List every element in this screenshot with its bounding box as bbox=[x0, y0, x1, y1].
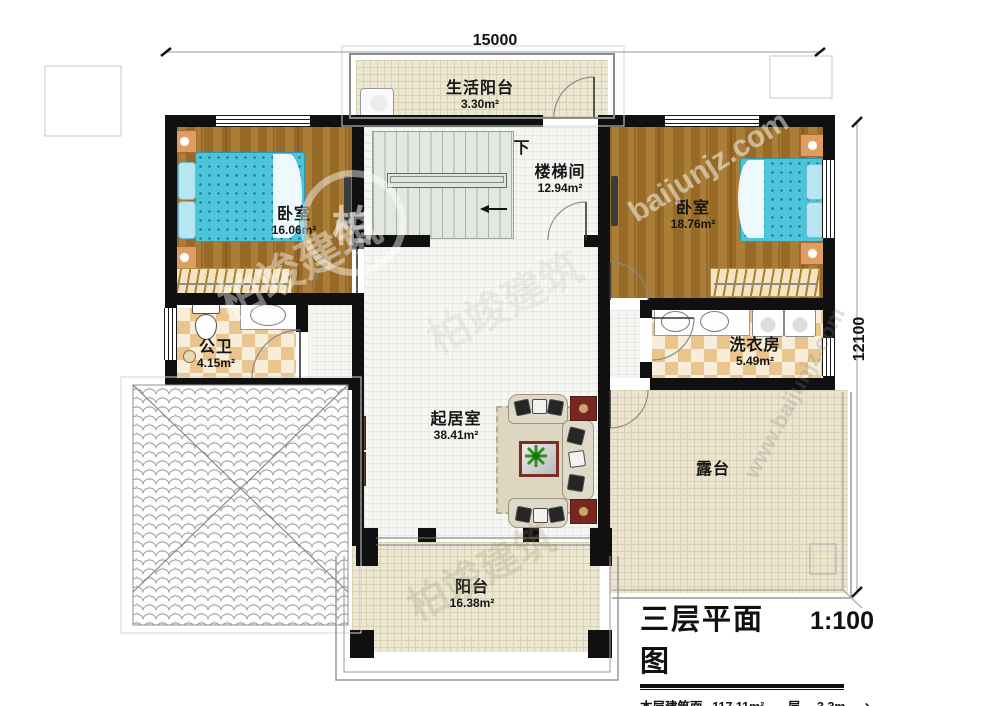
room-area: 16.06m² bbox=[239, 224, 349, 238]
wall bbox=[584, 235, 610, 247]
water-heater bbox=[360, 88, 394, 118]
laundry-sink bbox=[661, 311, 690, 332]
north-arrow-icon: ↘ bbox=[864, 699, 874, 706]
room-area: 12.94m² bbox=[505, 182, 615, 196]
sofa-top bbox=[508, 394, 568, 424]
stairs bbox=[372, 131, 514, 239]
washing-machine bbox=[752, 306, 784, 337]
room-area: 16.38m² bbox=[417, 597, 527, 611]
dimension-top: 15000 bbox=[463, 32, 527, 50]
room-label-bedroom-right: 卧室 18.76m² bbox=[638, 200, 748, 232]
column bbox=[590, 528, 612, 566]
wall bbox=[352, 115, 543, 127]
floor-area-label: 本层建筑面积: bbox=[640, 696, 708, 706]
nightstand bbox=[800, 134, 825, 157]
room-area: 5.49m² bbox=[700, 355, 810, 369]
plan-scale: 1:100 bbox=[810, 607, 874, 636]
plan-title: 三层平面图 bbox=[640, 596, 794, 680]
wall bbox=[648, 298, 835, 310]
eave-outline bbox=[45, 66, 121, 136]
window bbox=[216, 115, 310, 127]
room-name: 生活阳台 bbox=[415, 80, 545, 98]
room-name: 卧室 bbox=[638, 200, 748, 218]
eave-outline bbox=[770, 56, 832, 98]
room-area: 4.15m² bbox=[161, 357, 271, 371]
floor-height-value: 3.3m bbox=[817, 700, 846, 706]
wall bbox=[640, 362, 652, 378]
wall bbox=[296, 305, 308, 332]
sofa-right bbox=[562, 420, 594, 500]
room-name: 公卫 bbox=[161, 339, 271, 357]
room-name: 楼梯间 bbox=[505, 164, 615, 182]
sofa-bottom bbox=[508, 498, 568, 528]
stairs-down-label: 下 bbox=[508, 140, 536, 158]
hall-strip-left bbox=[308, 305, 352, 378]
pillow bbox=[178, 162, 196, 200]
wall bbox=[352, 293, 364, 546]
laundry-sink bbox=[700, 311, 729, 332]
room-label-laundry: 洗衣房 5.49m² bbox=[700, 337, 810, 369]
wall bbox=[165, 293, 364, 305]
room-label-bathroom: 公卫 4.15m² bbox=[161, 339, 271, 371]
room-label-terrace: 露台 bbox=[658, 461, 768, 479]
column bbox=[523, 528, 539, 542]
room-name: 卧室 bbox=[239, 206, 349, 224]
floor-plan: 生活阳台 3.30m² 下 楼梯间 12.94m² 卧室 16.06m² 卧室 … bbox=[0, 0, 1000, 706]
window bbox=[822, 160, 835, 238]
stair-handrail bbox=[387, 173, 507, 188]
side-table bbox=[570, 396, 597, 421]
eave-outline bbox=[121, 377, 361, 633]
side-table bbox=[570, 499, 597, 524]
room-name: 起居室 bbox=[401, 411, 511, 429]
room-area: 38.41m² bbox=[401, 429, 511, 443]
title-block: 三层平面图 1:100 本层建筑面积: 117.11m² 层高: 3.3m ↘ bbox=[632, 596, 874, 680]
title-underline bbox=[640, 684, 844, 688]
terrace-floor bbox=[610, 390, 848, 593]
column bbox=[418, 528, 436, 542]
washing-machine bbox=[784, 306, 816, 337]
column bbox=[588, 630, 612, 658]
wardrobe-right bbox=[710, 268, 820, 297]
wall bbox=[650, 378, 835, 390]
room-name: 阳台 bbox=[417, 579, 527, 597]
bathroom-sink bbox=[250, 304, 286, 326]
wall bbox=[165, 378, 364, 390]
dimension-right: 12100 bbox=[851, 311, 869, 367]
room-area: 3.30m² bbox=[415, 98, 545, 112]
hall-strip-right bbox=[610, 310, 640, 378]
room-label-life-balcony: 生活阳台 3.30m² bbox=[415, 80, 545, 112]
room-area: 18.76m² bbox=[638, 218, 748, 232]
room-name: 洗衣房 bbox=[700, 337, 810, 355]
nightstand bbox=[800, 242, 825, 265]
window bbox=[665, 115, 759, 127]
column bbox=[350, 630, 374, 658]
room-name: 露台 bbox=[658, 461, 768, 479]
room-label-living: 起居室 38.41m² bbox=[401, 411, 511, 443]
roof bbox=[133, 385, 348, 625]
window bbox=[822, 338, 835, 376]
room-label-stairwell: 楼梯间 12.94m² bbox=[505, 164, 615, 196]
wall bbox=[640, 300, 652, 318]
room-label-balcony: 阳台 16.38m² bbox=[417, 579, 527, 611]
pillow bbox=[178, 201, 196, 239]
column bbox=[356, 528, 378, 566]
floor-area-value: 117.11m² bbox=[712, 700, 764, 706]
wall bbox=[352, 127, 364, 249]
room-label-bedroom-left: 卧室 16.06m² bbox=[239, 206, 349, 238]
wall bbox=[364, 235, 430, 247]
floor-height-label: 层高: bbox=[788, 696, 813, 706]
coffee-table bbox=[519, 441, 559, 477]
